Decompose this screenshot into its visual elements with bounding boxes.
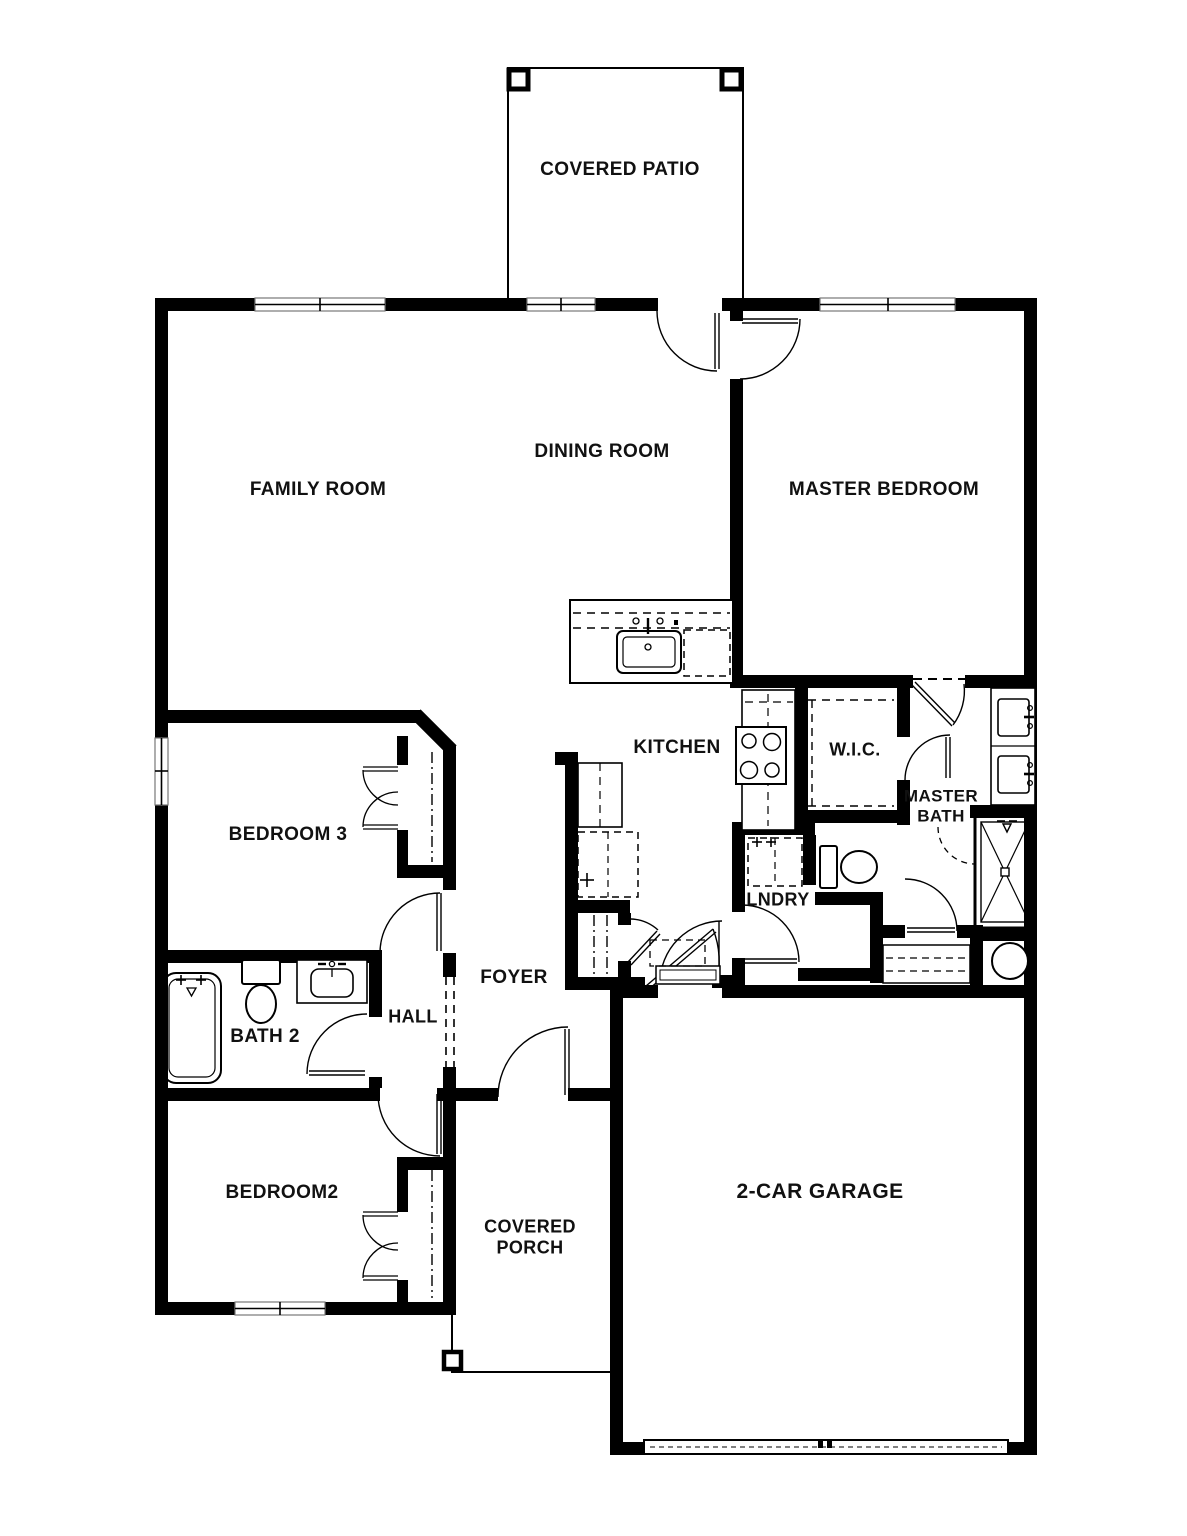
bedroom3-bifold-icon — [363, 767, 398, 829]
washer-dryer-icon — [748, 837, 802, 886]
garage-door-icon — [644, 1440, 1008, 1454]
patio-outline — [508, 68, 743, 298]
kitchen-island — [570, 600, 733, 683]
pantry-door-icon — [628, 919, 660, 965]
room-label-bath2: BATH 2 — [230, 1026, 300, 1048]
porch-outline — [452, 1315, 612, 1372]
master-vanity — [991, 688, 1035, 805]
bedroom2-bifold-icon — [363, 1212, 398, 1280]
bath2-door-icon — [307, 1014, 367, 1075]
bathtub-icon — [163, 973, 221, 1083]
garage-landing-dashed — [650, 940, 705, 966]
mbed-bath-door-icon — [912, 679, 965, 726]
room-label-master-bedroom: MASTER BEDROOM — [789, 479, 979, 501]
range-icon — [736, 727, 786, 784]
shower-door-swing — [938, 827, 975, 864]
wic-door-icon — [905, 735, 950, 780]
room-label-wic: W.I.C. — [829, 740, 880, 761]
patio-post-icon — [509, 70, 741, 89]
master-bedroom-door-icon — [740, 319, 800, 379]
master-bath-door-icon — [905, 879, 957, 932]
room-label-hall: HALL — [388, 1007, 438, 1028]
entry-step — [656, 966, 720, 984]
floor-plan-svg — [0, 0, 1187, 1536]
room-label-garage: 2-CAR GARAGE — [737, 1180, 904, 1204]
room-label-bedroom3: BEDROOM 3 — [229, 824, 348, 846]
room-label-lndry: LNDRY — [746, 890, 809, 911]
floor-plan: COVERED PATIO FAMILY ROOM DINING ROOM MA… — [0, 0, 1187, 1536]
porch-post-icon — [444, 1352, 461, 1369]
room-label-covered-porch: COVERED PORCH — [484, 1216, 576, 1257]
exterior-walls — [155, 298, 1037, 1455]
room-label-master-bath: MASTER BATH — [904, 786, 978, 825]
patio-door-icon — [657, 311, 719, 371]
room-label-covered-patio: COVERED PATIO — [540, 159, 700, 181]
room-label-foyer: FOYER — [480, 967, 547, 989]
laundry-door-icon — [742, 905, 799, 963]
cased-opening — [446, 977, 454, 1067]
toilet-icon — [242, 960, 280, 1023]
room-label-dining-room: DINING ROOM — [534, 441, 669, 463]
angled-wall — [416, 714, 452, 750]
room-label-bedroom2: BEDROOM2 — [226, 1182, 339, 1204]
refrigerator-icon — [578, 832, 638, 897]
toilet-icon — [820, 846, 877, 888]
linen-cabinet — [883, 945, 970, 983]
front-door-icon — [498, 1027, 569, 1097]
kitchen-counters — [578, 690, 795, 897]
bedroom3-door-icon — [380, 893, 441, 953]
water-heater-icon — [992, 943, 1028, 979]
room-label-kitchen: KITCHEN — [633, 737, 720, 759]
room-label-family-room: FAMILY ROOM — [250, 479, 386, 501]
bedroom2-door-icon — [378, 1094, 441, 1156]
bath2-vanity — [297, 960, 367, 1003]
